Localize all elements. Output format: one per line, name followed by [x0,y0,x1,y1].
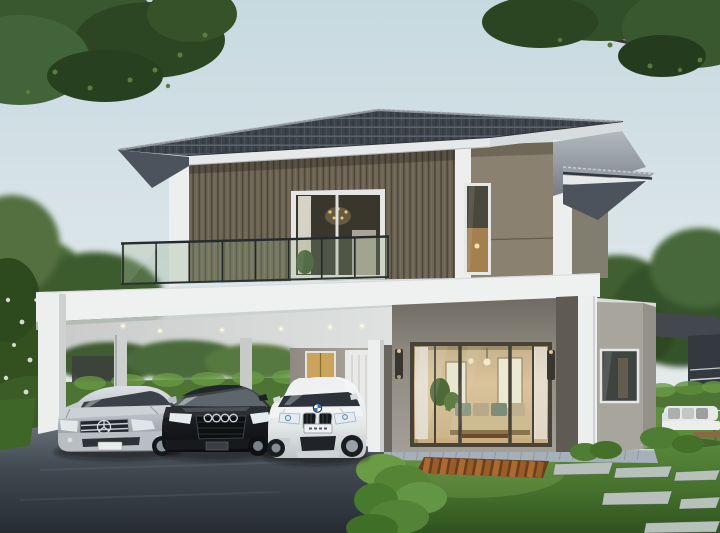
hedge-top [674,381,706,395]
sofa-cushion [473,403,489,416]
sconce-body [547,350,555,380]
wall-sconce-right [547,350,555,380]
porch-return-shadow [384,345,392,452]
deck-slat [529,461,532,477]
bush [672,435,704,453]
deck-slat [521,461,524,477]
scene-canvas [0,0,720,533]
wheel-rim [346,440,358,452]
pendant-lamp [484,359,491,366]
wheel-rim [272,444,281,453]
lamp-glow [475,244,480,249]
curtain [534,347,547,439]
sofa-cushion [682,408,694,419]
sliding-glass-door [410,342,552,447]
deck-slat [495,460,498,476]
sconce-body [395,349,403,379]
balcony-railing [121,237,389,285]
sconce-glow [397,349,401,353]
deck-slat [486,460,489,476]
deck-slat [460,459,463,475]
deck-slat [442,459,445,475]
license-plate [206,442,228,450]
wing-window [601,350,638,402]
stepping-stone [553,462,613,475]
bush [590,441,622,459]
column-shade [380,340,384,452]
sofa-cushion [491,403,507,416]
porch-recess-wall [556,296,578,452]
stepping-stone [679,497,720,509]
wall-sconce-left [395,349,403,379]
downlight [361,325,364,328]
deck-slat [434,458,437,474]
sofa-cushion [696,408,708,419]
stepping-stone [644,521,720,533]
leaves [618,35,706,77]
license-plate [304,424,332,433]
downlight [329,326,332,329]
deck-slat [503,461,506,477]
bmw-roundel-icon [313,404,321,412]
hedge-right [648,381,720,410]
side-table [694,432,720,437]
deck-slat [425,458,428,474]
downlight [122,325,125,328]
narrow-window [464,183,491,275]
downlight [159,330,162,333]
stepping-stone [614,466,672,478]
wheel-rim [253,441,263,451]
sconce-glow [397,375,401,379]
window-interior [618,358,628,398]
downlight [221,329,224,332]
leaves [47,50,163,102]
sconce-glow [549,350,553,354]
porch [392,298,556,452]
stepping-stone [602,491,672,505]
bumper-mesh [300,436,336,451]
entry-window [306,352,335,380]
deck-slat [469,459,472,475]
rendered-photo [0,0,720,533]
fog-light [68,438,73,443]
headlight-ring [343,415,348,420]
license-plate [98,442,122,450]
deck-slat [512,461,515,477]
deck-slat [451,459,454,475]
deck-slat [538,462,541,478]
headlight-ring [285,415,290,420]
sofa-seat [662,421,720,430]
interior-floor [418,438,548,443]
downlight [280,328,283,331]
skid-plate [296,451,340,458]
wing-side-wall [643,303,656,449]
sofa-cushion [668,408,680,419]
headlight-left [60,420,78,432]
stepping-stone [674,470,720,481]
deck-slat [477,460,480,476]
